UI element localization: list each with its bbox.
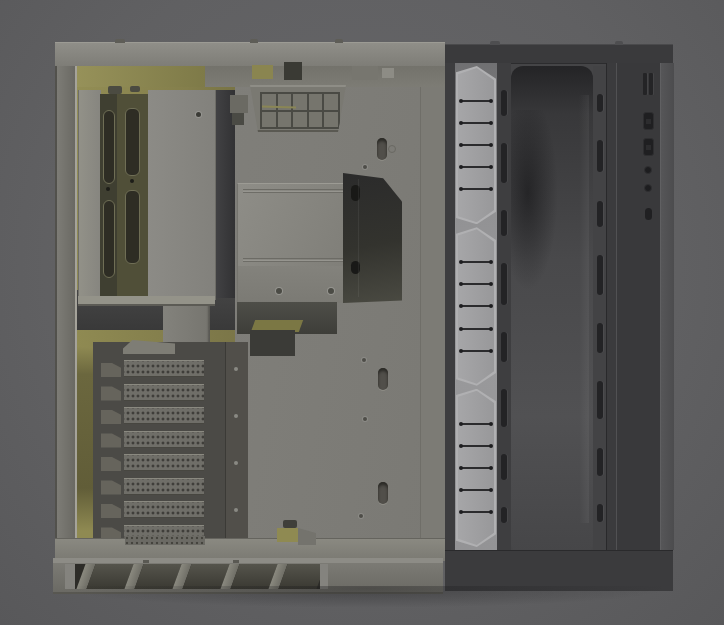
vent-slot (501, 332, 507, 362)
cage-seam (243, 258, 347, 259)
pci-slot-tab (101, 407, 121, 424)
screw-hole (328, 288, 334, 294)
panel-fold-divider (606, 63, 617, 550)
vent-slot-column-left (497, 63, 511, 550)
pci-slot-cover (124, 431, 204, 448)
top-edge-tab (115, 39, 125, 43)
fan-bracket-strip (455, 63, 497, 550)
pci-slot-tab (101, 501, 121, 518)
front-io-strip (617, 63, 660, 550)
vent-slot (597, 504, 603, 522)
cable-tie-slot (378, 368, 388, 390)
bracket-rung (461, 166, 491, 168)
bracket-rungs (461, 241, 491, 371)
bracket-rungs (461, 403, 491, 533)
pci-slot-cover (124, 407, 204, 424)
fan-bracket-section (456, 66, 496, 224)
screw-hole (130, 179, 134, 183)
pci-slot-cover (124, 384, 204, 401)
top-io-vent (248, 85, 348, 132)
drive-cage-base (238, 266, 353, 303)
screw-hole (196, 112, 201, 117)
bottom-slot-cutout (283, 520, 297, 528)
bracket-rung (461, 467, 491, 469)
vent-slot (597, 381, 603, 419)
small-connector-block (232, 113, 244, 125)
pci-slot (93, 454, 247, 471)
rail-slot (125, 108, 140, 176)
drive-cage (237, 183, 352, 302)
screw-hole (276, 288, 282, 294)
chassis-left-frame (55, 66, 77, 544)
screw-hole (359, 514, 363, 518)
top-edge-tab (615, 41, 623, 45)
rail-tick (233, 560, 239, 563)
panel-right-edge (660, 63, 674, 550)
pci-slot-tab (101, 431, 121, 448)
vent-slot (501, 263, 507, 305)
pci-slot (93, 478, 247, 495)
standoff-block-yellow (252, 65, 273, 79)
screw-hole (363, 417, 367, 421)
bracket-rung (461, 122, 491, 124)
bracket-rung (461, 445, 491, 447)
bracket-rung (461, 283, 491, 285)
rail-tick (143, 560, 149, 563)
power-vent-line (643, 73, 647, 95)
vent-slot (597, 323, 603, 353)
screw-hole (363, 165, 367, 169)
bracket-tab (130, 86, 140, 92)
rail-slot (103, 200, 115, 278)
recess-step (358, 179, 359, 297)
vent-grid-cell (309, 94, 323, 110)
vent-slot (501, 454, 507, 480)
chassis-top-frame (55, 42, 445, 67)
vent-slot-column-right (593, 66, 606, 550)
vent-slot (501, 90, 507, 116)
bracket-rung (461, 328, 491, 330)
bracket-rung (461, 100, 491, 102)
pci-thumbscrew (234, 508, 238, 512)
vent-slot (597, 94, 603, 112)
pci-slot-tab (101, 454, 121, 471)
vent-grid-cell (309, 112, 323, 128)
bracket-rung (461, 188, 491, 190)
bracket-rung (461, 511, 491, 513)
panel-interior-cavity (511, 66, 593, 552)
pci-latch (123, 340, 175, 354)
standoff-block-light (382, 68, 394, 78)
bracket-tab (108, 86, 122, 94)
top-yellow-band (73, 66, 205, 87)
standoff-block-dark (284, 62, 302, 80)
bracket-rungs (461, 80, 491, 210)
vent-grid-cell (324, 94, 338, 110)
pci-thumbscrew (234, 367, 238, 371)
bracket-rail-right (117, 94, 148, 296)
top-edge-tab (335, 39, 343, 43)
pci-slot (93, 360, 247, 377)
vent-grid-cell (293, 112, 307, 128)
usb-port (643, 138, 654, 156)
pci-slot (93, 384, 247, 401)
rail-slot (103, 110, 115, 184)
floor-shadow (60, 586, 672, 608)
vent-slot (501, 507, 507, 523)
vent-slot (597, 448, 603, 476)
bracket-bottom-lip (78, 296, 215, 306)
vent-slot (501, 389, 507, 427)
top-shelf (205, 66, 445, 87)
vent-grid-cell (278, 112, 292, 128)
psu-cutout-recess (343, 173, 402, 303)
bracket-rung (461, 144, 491, 146)
pci-slot-tab (101, 360, 121, 377)
pci-slot-area (93, 342, 247, 548)
case-chassis (55, 42, 445, 560)
cage-seam (243, 189, 347, 190)
bracket-rung (461, 305, 491, 307)
front-panel (445, 44, 673, 590)
indicator-hole (645, 208, 652, 220)
pci-slot-cover (124, 501, 204, 518)
vent-grid (260, 92, 340, 129)
panel-top-frame (445, 44, 673, 64)
perforated-strip (125, 536, 205, 545)
pci-slot (93, 501, 247, 518)
screw-hole (362, 358, 366, 362)
yellow-tab (277, 528, 298, 542)
vent-slot (501, 210, 507, 236)
pci-slot (93, 431, 247, 448)
pci-top-opening (250, 330, 295, 356)
vent-slot (597, 255, 603, 295)
bracket-face (148, 90, 216, 300)
pci-slot-cover (124, 454, 204, 471)
standoff-block-gray (352, 66, 378, 80)
vent-slot (501, 143, 507, 183)
rail-slot (125, 190, 140, 264)
vertical-mount-bracket (78, 90, 215, 300)
small-connector-block (230, 95, 248, 113)
bracket-rung (461, 489, 491, 491)
audio-jack (644, 184, 652, 192)
cable-tie-slot (378, 482, 388, 504)
fan-bracket-section (456, 389, 496, 547)
power-vent-line (649, 73, 653, 95)
bracket-rung (461, 423, 491, 425)
vent-slot (597, 201, 603, 227)
tray-right-column (420, 66, 446, 538)
pci-thumbscrew (234, 414, 238, 418)
bracket-rung (461, 350, 491, 352)
audio-jack (644, 166, 652, 174)
pci-thumbscrew (234, 461, 238, 465)
top-edge-tab (250, 39, 258, 43)
bracket-rung (461, 261, 491, 263)
bracket-rail-left (100, 94, 117, 296)
pci-slot-cover (124, 478, 204, 495)
screw-hole (106, 187, 110, 191)
vent-slot (597, 140, 603, 172)
screw-hole (388, 145, 396, 153)
vent-grid-cell (324, 112, 338, 128)
usb-port (643, 112, 654, 130)
cable-tie-slot (377, 138, 387, 160)
pci-slot-tab (101, 478, 121, 495)
pci-slot (93, 407, 247, 424)
pci-slot-tab (101, 384, 121, 401)
top-edge-tab (490, 41, 500, 45)
pci-slot-cover (124, 360, 204, 377)
fan-bracket-section (456, 227, 496, 385)
vent-grid-cell (262, 112, 276, 128)
render-viewport (0, 0, 724, 625)
panel-bottom-frame (445, 550, 673, 591)
panel-left-edge (445, 63, 455, 550)
bracket-edge (78, 90, 101, 300)
